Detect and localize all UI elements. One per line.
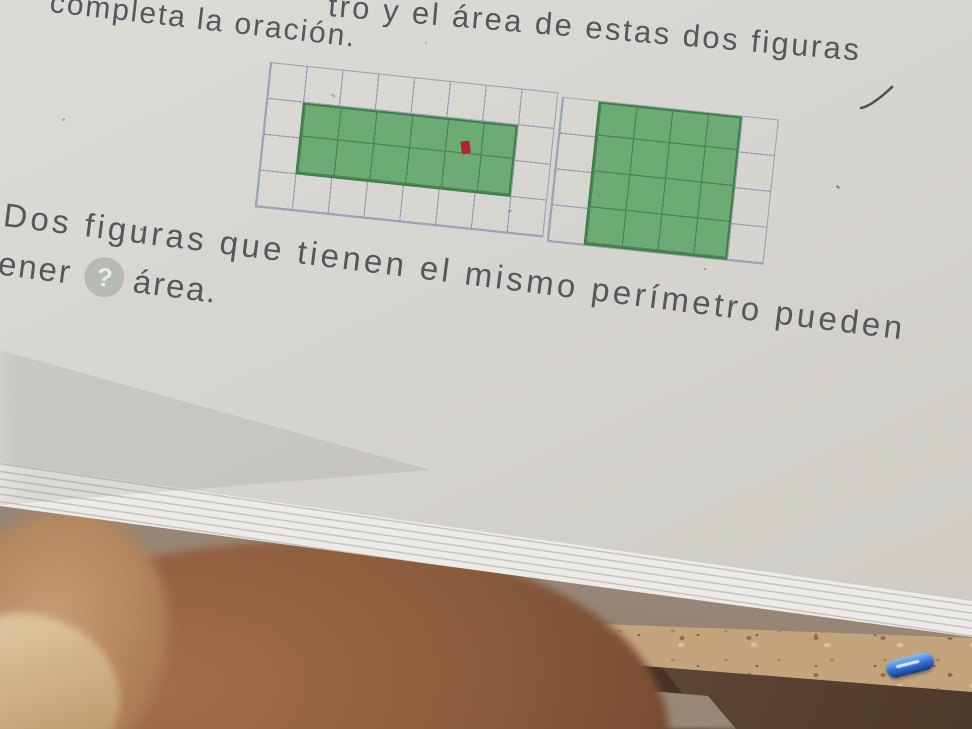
left-grid xyxy=(255,62,559,238)
right-grid xyxy=(547,97,779,265)
question-mark-icon: ? xyxy=(95,261,115,294)
dust-speck xyxy=(140,228,143,231)
red-pen-mark xyxy=(460,140,471,154)
pen-swoosh-mark xyxy=(858,84,898,112)
dust-speck xyxy=(704,268,706,270)
photo-scene: tro y el área de estas dos figuras compl… xyxy=(0,0,972,729)
dust-speck xyxy=(425,42,427,44)
green-square-4x4 xyxy=(584,102,742,260)
green-rectangle-6x2 xyxy=(295,103,517,197)
answer-badge: ? xyxy=(82,255,127,300)
dust-speck xyxy=(62,118,65,121)
